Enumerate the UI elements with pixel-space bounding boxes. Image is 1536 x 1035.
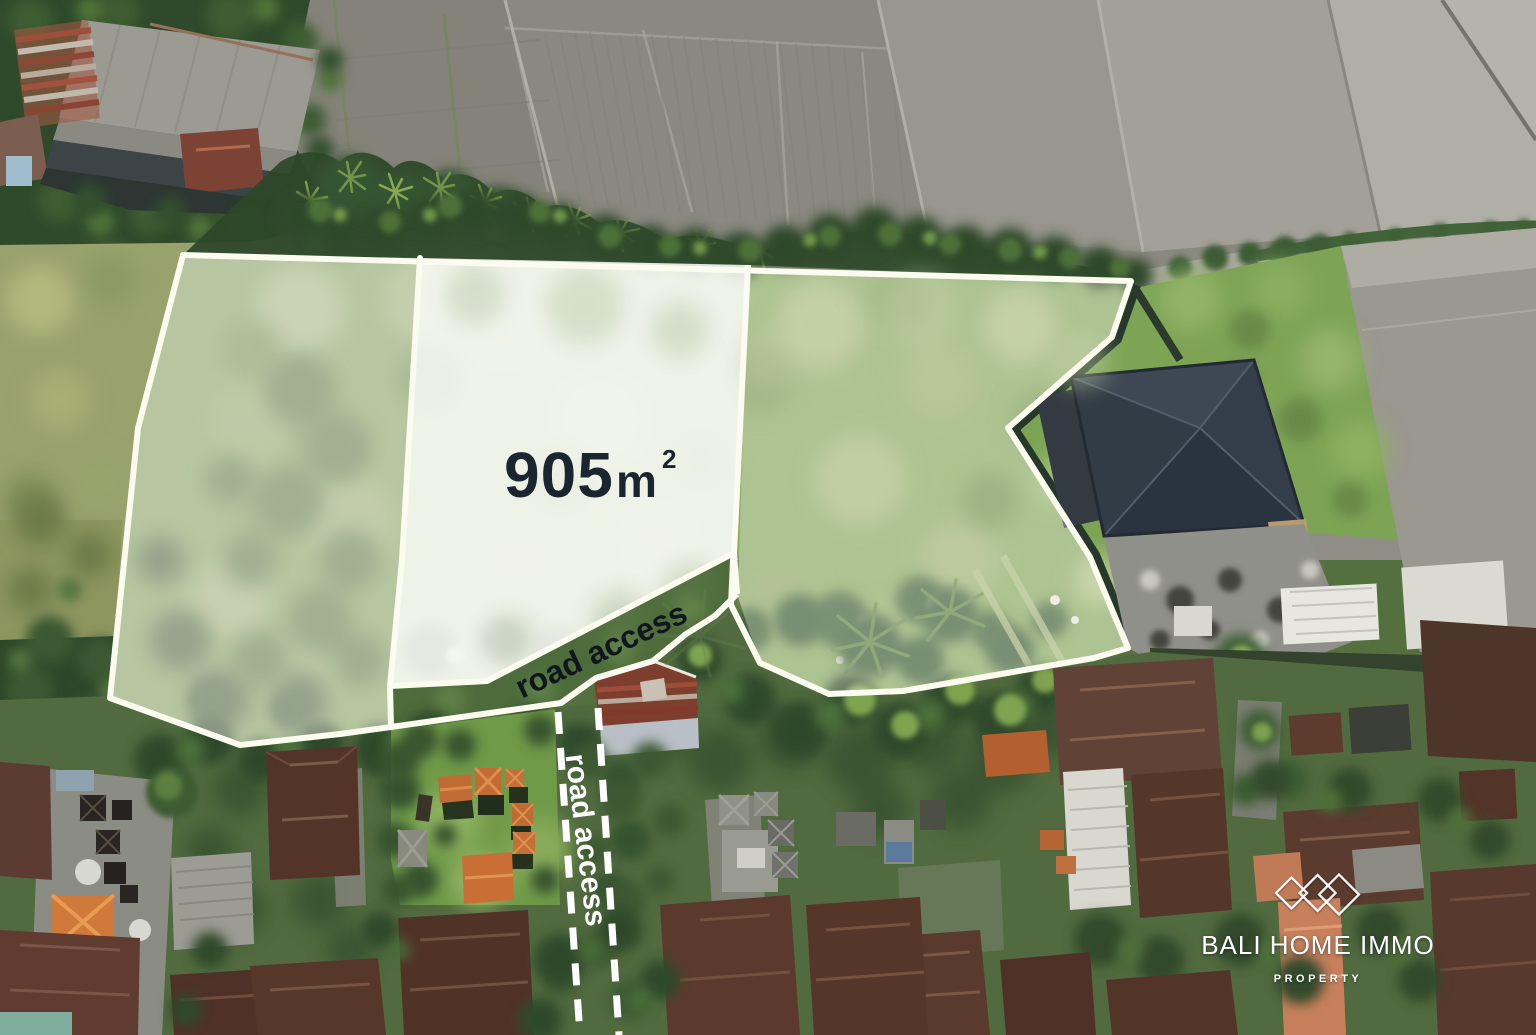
svg-text:905: 905	[504, 439, 614, 511]
svg-text:PROPERTY: PROPERTY	[1274, 973, 1363, 985]
svg-text:BALI HOME IMMO: BALI HOME IMMO	[1201, 930, 1435, 960]
svg-text:m: m	[616, 455, 657, 507]
svg-text:2: 2	[662, 444, 676, 474]
